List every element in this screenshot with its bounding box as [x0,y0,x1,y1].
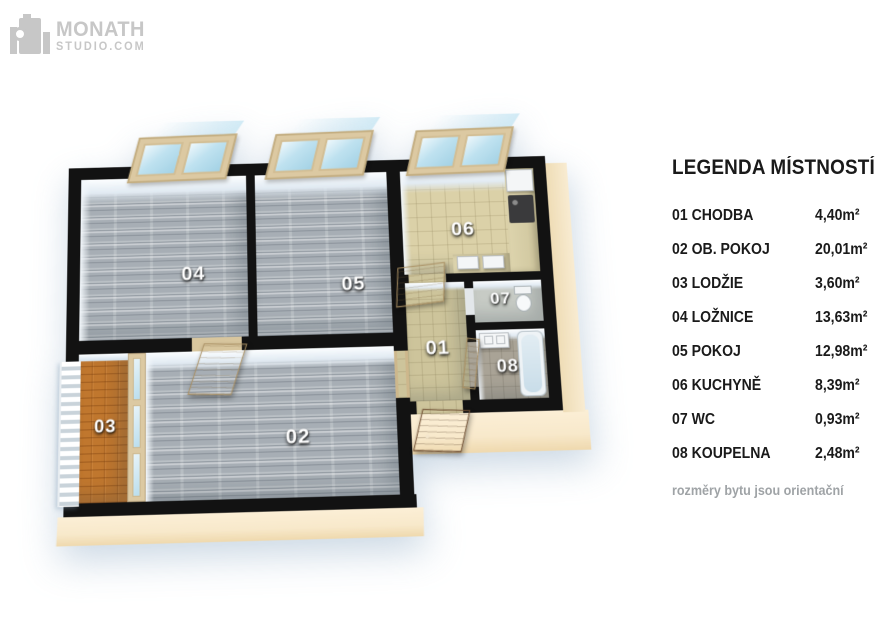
legend-rows: 01 CHODBA 4,40m² 02 OB. POKOJ 20,01m² 03… [672,207,882,479]
monath-logo-icon [10,16,50,56]
legend-row: 05 POKOJ 12,98m² [672,343,882,377]
legend-note: rozměry bytu jsou orientační [672,483,867,498]
legend-room-area: 8,39m² [815,377,860,395]
legend-room-area: 3,60m² [815,275,860,293]
legend-room-name: 07 WC [672,411,715,429]
window-room-04 [127,134,238,184]
legend-room-area: 12,98m² [815,343,867,361]
doorway-01-07 [464,288,474,315]
floor-plan: 04 05 06 07 01 08 02 03 [63,156,578,530]
loggia-railing [57,361,80,507]
room-label-07: 07 [490,289,512,309]
logo-suffix: STUDIO.COM [56,42,146,54]
legend-room-area: 20,01m² [815,241,867,259]
kitchen-sink [482,255,504,269]
legend-row: 06 KUCHYNĚ 8,39m² [672,377,882,411]
legend-room-name: 08 KOUPELNA [672,445,771,463]
door-06-to-01 [396,262,445,308]
legend-row: 04 LOŽNICE 13,63m² [672,309,882,343]
kitchen-cabinet [505,169,534,192]
legend-title: LEGENDA MÍSTNOSTÍ [672,156,861,180]
logo-text: MONATH STUDIO.COM [56,19,150,54]
room-label-06: 06 [451,219,476,241]
stove [508,195,535,223]
bathroom-sink-basin [496,335,506,344]
legend-room-area: 0,93m² [815,411,860,429]
window-room-06 [406,126,514,176]
legend-room-area: 4,40m² [815,207,860,225]
legend-room-name: 01 CHODBA [672,207,753,225]
legend-room-name: 02 OB. POKOJ [672,241,770,259]
legend-row: 02 OB. POKOJ 20,01m² [672,241,882,275]
room-label-02: 02 [286,426,311,450]
legend-room-name: 03 LODŽIE [672,275,743,293]
room-label-03: 03 [94,416,117,438]
kitchen-sink [457,256,479,270]
legend: LEGENDA MÍSTNOSTÍ 01 CHODBA 4,40m² 02 OB… [672,156,882,498]
legend-room-name: 05 POKOJ [672,343,741,361]
legend-room-name: 06 KUCHYNĚ [672,377,761,395]
room-label-04: 04 [181,264,205,286]
bathroom-sink-basin [484,336,493,345]
entry-door [413,409,470,452]
room-label-08: 08 [496,356,519,377]
toilet-tank [514,286,532,295]
legend-row: 07 WC 0,93m² [672,411,882,445]
room-label-01: 01 [425,337,450,360]
legend-row: 03 LODŽIE 3,60m² [672,275,882,309]
logo-brand: MONATH [56,19,146,40]
legend-room-area: 13,63m² [815,309,867,327]
legend-row: 01 CHODBA 4,40m² [672,207,882,241]
legend-room-area: 2,48m² [815,445,860,463]
legend-row: 08 KOUPELNA 2,48m² [672,445,882,479]
window-room-05 [264,130,373,180]
loggia-glass-wall [127,353,146,502]
legend-room-name: 04 LOŽNICE [672,309,753,327]
room-label-05: 05 [341,273,366,295]
logo: MONATH STUDIO.COM [10,16,150,56]
